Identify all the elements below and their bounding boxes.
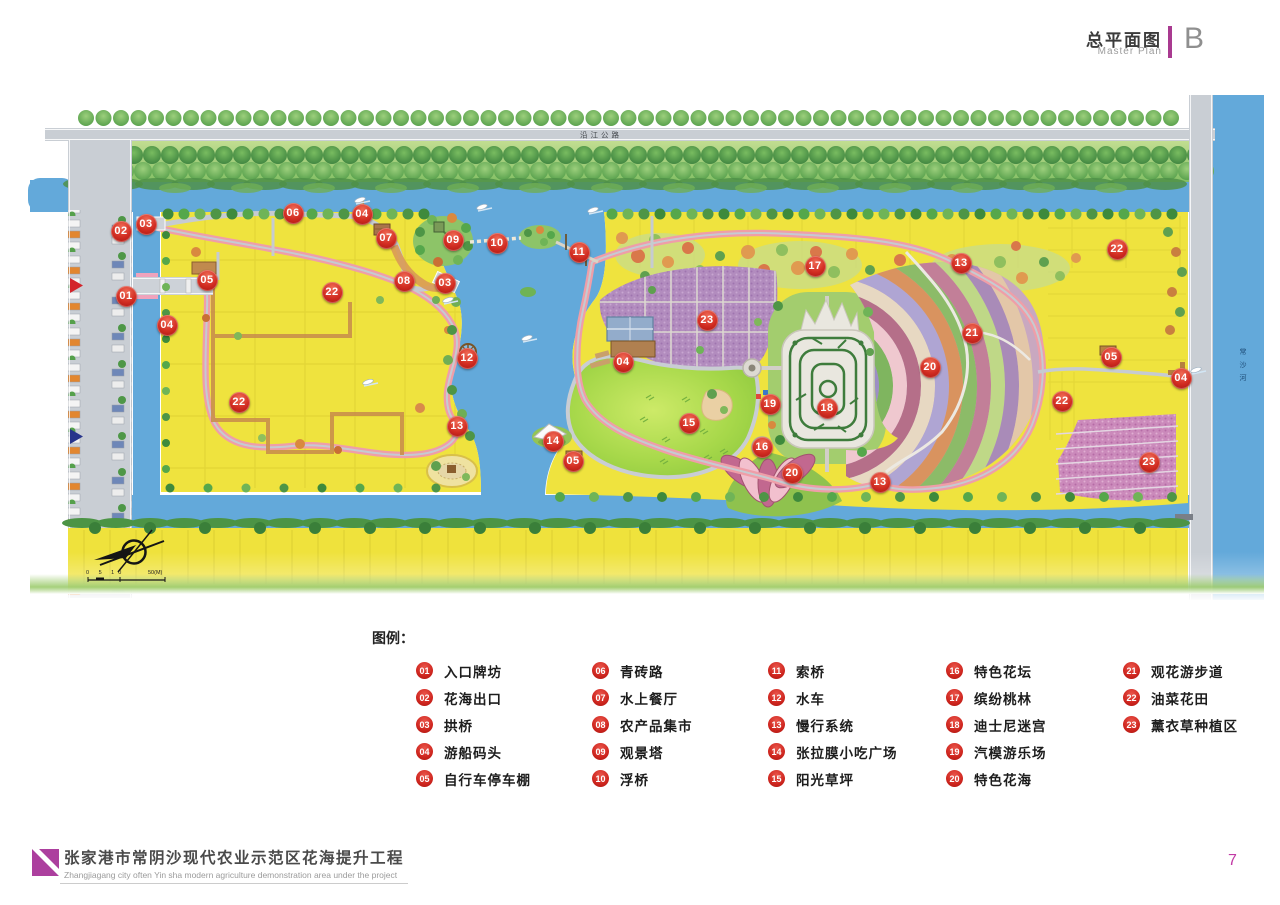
legend-column-4: 16特色花坛17缤纷桃林18迪士尼迷宫19汽模游乐场20特色花海 <box>946 662 1047 797</box>
arch-bridge-03a <box>137 217 165 230</box>
legend-label: 阳光草坪 <box>796 769 854 789</box>
water-restaurant-07 <box>374 224 390 235</box>
legend-number-badge: 18 <box>946 716 963 733</box>
legend-number-badge: 04 <box>416 743 433 760</box>
legend-label: 拱桥 <box>444 715 473 735</box>
legend-label: 油菜花田 <box>1151 688 1209 708</box>
legend-number-badge: 20 <box>946 770 963 787</box>
page: 总平面图 Master Plan B <box>0 0 1280 905</box>
project-title-block: 张家港市常阴沙现代农业示范区花海提升工程 Zhangjiagang city o… <box>60 846 408 884</box>
site-plan-drawing: 沿江公路 <box>0 0 1280 620</box>
top-road-label: 沿江公路 <box>580 130 622 140</box>
legend-item-17: 17缤纷桃林 <box>946 689 1047 706</box>
legend-number-badge: 22 <box>1123 689 1140 706</box>
legend-title: 图例： <box>372 628 414 648</box>
legend-label: 张拉膜小吃广场 <box>796 742 898 762</box>
legend-label: 青砖路 <box>620 661 664 681</box>
legend-number-badge: 10 <box>592 770 609 787</box>
legend-item-09: 09观景塔 <box>592 743 693 760</box>
legend-label: 观景塔 <box>620 742 664 762</box>
legend-label: 浮桥 <box>620 769 649 789</box>
legend-number-badge: 08 <box>592 716 609 733</box>
viewing-tower <box>434 222 444 232</box>
legend-item-03: 03拱桥 <box>416 716 531 733</box>
legend-number-badge: 14 <box>768 743 785 760</box>
legend-item-16: 16特色花坛 <box>946 662 1047 679</box>
legend-column-1: 01入口牌坊02花海出口03拱桥04游船码头05自行车停车棚 <box>416 662 531 797</box>
legend-number-badge: 11 <box>768 662 785 679</box>
legend-label: 自行车停车棚 <box>444 769 531 789</box>
legend-item-06: 06青砖路 <box>592 662 693 679</box>
play-garden <box>427 455 477 487</box>
legend-item-14: 14张拉膜小吃广场 <box>768 743 898 760</box>
legend-label: 游船码头 <box>444 742 502 762</box>
feature-flower-bed-16 <box>752 437 772 457</box>
legend-number-badge: 09 <box>592 743 609 760</box>
legend: 图例： 01入口牌坊02花海出口03拱桥04游船码头05自行车停车棚06青砖路0… <box>372 626 1252 816</box>
legend-number-badge: 15 <box>768 770 785 787</box>
gate-post <box>186 279 191 293</box>
legend-number-badge: 23 <box>1123 716 1140 733</box>
legend-number-badge: 21 <box>1123 662 1140 679</box>
legend-label: 水车 <box>796 688 825 708</box>
legend-label: 汽模游乐场 <box>974 742 1047 762</box>
legend-number-badge: 17 <box>946 689 963 706</box>
legend-item-11: 11索桥 <box>768 662 898 679</box>
legend-column-2: 06青砖路07水上餐厅08农产品集市09观景塔10浮桥 <box>592 662 693 797</box>
legend-number-badge: 03 <box>416 716 433 733</box>
legend-label: 入口牌坊 <box>444 661 502 681</box>
legend-item-19: 19汽模游乐场 <box>946 743 1047 760</box>
legend-label: 缤纷桃林 <box>974 688 1032 708</box>
legend-label: 水上餐厅 <box>620 688 678 708</box>
project-title-cn: 张家港市常阴沙现代农业示范区花海提升工程 <box>64 846 404 868</box>
legend-item-12: 12水车 <box>768 689 898 706</box>
islet <box>520 287 536 297</box>
legend-item-08: 08农产品集市 <box>592 716 693 733</box>
footer: 张家港市常阴沙现代农业示范区花海提升工程 Zhangjiagang city o… <box>0 840 1280 900</box>
legend-column-3: 11索桥12水车13慢行系统14张拉膜小吃广场15阳光草坪 <box>768 662 898 797</box>
bottom-green-band <box>30 574 1264 594</box>
project-title-en: Zhangjiagang city often Yin sha modern a… <box>64 870 404 880</box>
bike-shed-05c <box>1100 346 1116 355</box>
legend-item-13: 13慢行系统 <box>768 716 898 733</box>
project-logo <box>32 849 59 876</box>
top-road: 沿江公路 <box>45 128 1215 141</box>
legend-item-15: 15阳光草坪 <box>768 770 898 787</box>
legend-column-5: 21观花游步道22油菜花田23薰衣草种植区 <box>1123 662 1238 743</box>
tree <box>707 389 717 399</box>
right-river-label: 常沙河 <box>1237 348 1247 387</box>
legend-item-07: 07水上餐厅 <box>592 689 693 706</box>
master-plan-map: 沿江公路 <box>0 0 1280 620</box>
legend-label: 迪士尼迷宫 <box>974 715 1047 735</box>
page-number: 7 <box>1228 852 1237 870</box>
plaza-node <box>743 359 761 377</box>
scale-unit: 50(M) <box>148 570 163 576</box>
street-tree-row <box>78 110 1179 126</box>
legend-number-badge: 02 <box>416 689 433 706</box>
legend-item-18: 18迪士尼迷宫 <box>946 716 1047 733</box>
legend-item-10: 10浮桥 <box>592 770 693 787</box>
legend-label: 花海出口 <box>444 688 502 708</box>
legend-label: 薰衣草种植区 <box>1151 715 1238 735</box>
legend-number-badge: 13 <box>768 716 785 733</box>
legend-number-badge: 05 <box>416 770 433 787</box>
legend-label: 特色花坛 <box>974 661 1032 681</box>
legend-number-badge: 19 <box>946 743 963 760</box>
lawn-sand-patch <box>702 390 733 421</box>
bike-shed-05b <box>566 451 582 461</box>
legend-item-01: 01入口牌坊 <box>416 662 531 679</box>
waterwheel-12 <box>460 344 476 360</box>
bike-shed-05a <box>192 262 216 274</box>
tree <box>720 406 728 414</box>
legend-item-21: 21观花游步道 <box>1123 662 1238 679</box>
legend-label: 慢行系统 <box>796 715 854 735</box>
legend-item-02: 02花海出口 <box>416 689 531 706</box>
legend-number-badge: 12 <box>768 689 785 706</box>
legend-item-04: 04游船码头 <box>416 743 531 760</box>
boat-dock-04d <box>1180 362 1185 382</box>
legend-number-badge: 16 <box>946 662 963 679</box>
legend-item-20: 20特色花海 <box>946 770 1047 787</box>
legend-label: 观花游步道 <box>1151 661 1224 681</box>
legend-label: 特色花海 <box>974 769 1032 789</box>
legend-item-05: 05自行车停车棚 <box>416 770 531 787</box>
scale-ticks: 0 5 10 <box>86 570 125 576</box>
legend-number-badge: 01 <box>416 662 433 679</box>
legend-label: 农产品集市 <box>620 715 693 735</box>
legend-number-badge: 06 <box>592 662 609 679</box>
legend-number-badge: 07 <box>592 689 609 706</box>
legend-label: 索桥 <box>796 661 825 681</box>
legend-item-22: 22油菜花田 <box>1123 689 1238 706</box>
legend-item-23: 23薰衣草种植区 <box>1123 716 1238 733</box>
